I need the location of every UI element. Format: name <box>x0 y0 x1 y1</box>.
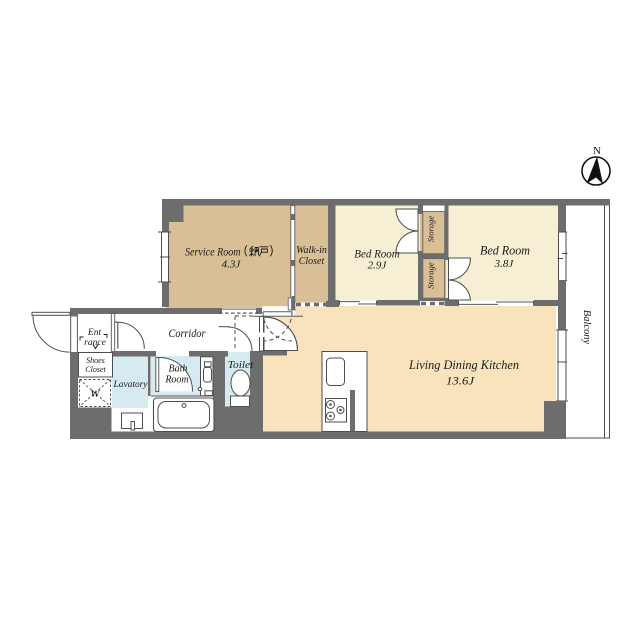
svg-text:Toilet: Toilet <box>228 360 254 371</box>
svg-text:Bed Room: Bed Room <box>354 247 400 261</box>
svg-text:Shoes: Shoes <box>86 356 105 365</box>
svg-text:Storage: Storage <box>426 262 436 289</box>
svg-text:Room: Room <box>164 375 188 386</box>
svg-text:Storage: Storage <box>426 216 436 243</box>
svg-text:Walk-in: Walk-in <box>296 245 327 256</box>
svg-text:Balcony: Balcony <box>581 310 592 345</box>
svg-text:Lavatory: Lavatory <box>113 380 149 390</box>
svg-text:Corridor: Corridor <box>169 328 206 340</box>
svg-text:2.9J: 2.9J <box>368 260 388 272</box>
svg-text:rance: rance <box>84 338 106 348</box>
svg-text:Closet: Closet <box>299 256 325 267</box>
svg-text:Bath: Bath <box>169 364 188 375</box>
svg-text:3.8J: 3.8J <box>494 258 515 270</box>
svg-text:4.3J: 4.3J <box>222 259 242 271</box>
svg-text:W: W <box>90 388 100 400</box>
svg-text:Service Room: Service Room <box>185 247 241 259</box>
svg-text:N: N <box>593 145 601 157</box>
svg-text:Ent: Ent <box>87 328 102 338</box>
svg-text:13.6J: 13.6J <box>446 374 475 388</box>
svg-text:Bed Room: Bed Room <box>480 244 530 258</box>
svg-text:Living Dining Kitchen: Living Dining Kitchen <box>408 357 519 372</box>
svg-text:Closet: Closet <box>85 365 106 374</box>
